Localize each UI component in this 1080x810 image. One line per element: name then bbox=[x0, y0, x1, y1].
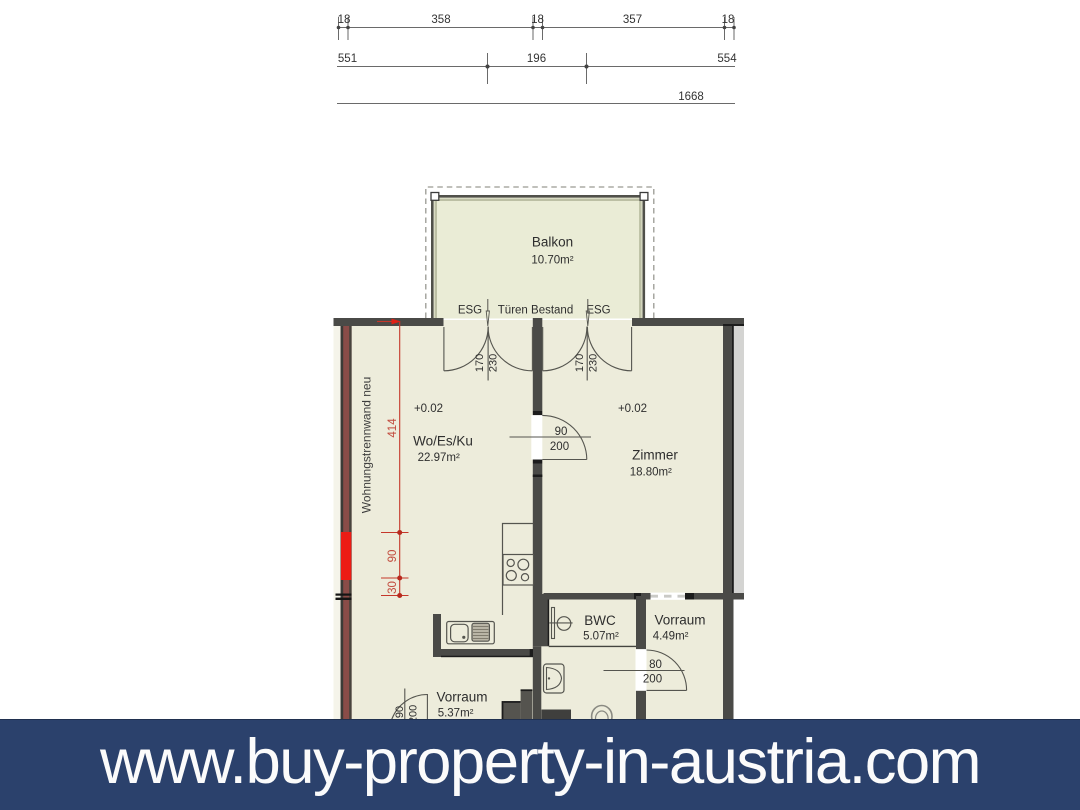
svg-text:Zimmer: Zimmer bbox=[632, 447, 678, 462]
svg-text:170: 170 bbox=[574, 354, 586, 372]
svg-text:22.97m²: 22.97m² bbox=[418, 452, 460, 464]
svg-text:551: 551 bbox=[338, 53, 357, 65]
svg-text:Türen Bestand: Türen Bestand bbox=[498, 305, 573, 317]
svg-text:18: 18 bbox=[722, 14, 735, 26]
svg-text:5.07m²: 5.07m² bbox=[583, 631, 619, 643]
svg-text:80: 80 bbox=[649, 659, 662, 671]
svg-text:18: 18 bbox=[338, 14, 351, 26]
svg-text:90: 90 bbox=[555, 426, 568, 438]
svg-text:200: 200 bbox=[643, 673, 662, 685]
svg-text:230: 230 bbox=[488, 354, 500, 372]
svg-text:1668: 1668 bbox=[678, 91, 704, 103]
svg-text:+0.02: +0.02 bbox=[618, 403, 647, 415]
svg-text:18.80m²: 18.80m² bbox=[630, 467, 672, 479]
svg-text:4.49m²: 4.49m² bbox=[653, 631, 689, 643]
svg-text:+0.02: +0.02 bbox=[414, 403, 443, 415]
svg-text:230: 230 bbox=[588, 354, 600, 372]
svg-text:170: 170 bbox=[474, 354, 486, 372]
svg-text:10.70m²: 10.70m² bbox=[531, 255, 573, 267]
svg-text:358: 358 bbox=[431, 14, 450, 26]
svg-text:414: 414 bbox=[387, 418, 399, 438]
svg-text:ESG: ESG bbox=[458, 305, 482, 317]
svg-text:BWC: BWC bbox=[584, 613, 616, 628]
svg-text:554: 554 bbox=[717, 53, 737, 65]
svg-text:18: 18 bbox=[531, 14, 544, 26]
svg-text:200: 200 bbox=[550, 441, 569, 453]
svg-text:Vorraum: Vorraum bbox=[436, 690, 487, 705]
svg-text:Wohnungstrennwand neu: Wohnungstrennwand neu bbox=[360, 377, 374, 514]
svg-text:90: 90 bbox=[387, 550, 399, 563]
svg-text:ESG: ESG bbox=[586, 305, 610, 317]
svg-text:357: 357 bbox=[623, 14, 642, 26]
svg-text:Vorraum: Vorraum bbox=[654, 613, 705, 628]
svg-text:Balkon: Balkon bbox=[532, 235, 573, 250]
svg-text:30: 30 bbox=[387, 581, 399, 594]
svg-text:196: 196 bbox=[527, 53, 546, 65]
svg-text:Wo/Es/Ku: Wo/Es/Ku bbox=[413, 434, 473, 449]
